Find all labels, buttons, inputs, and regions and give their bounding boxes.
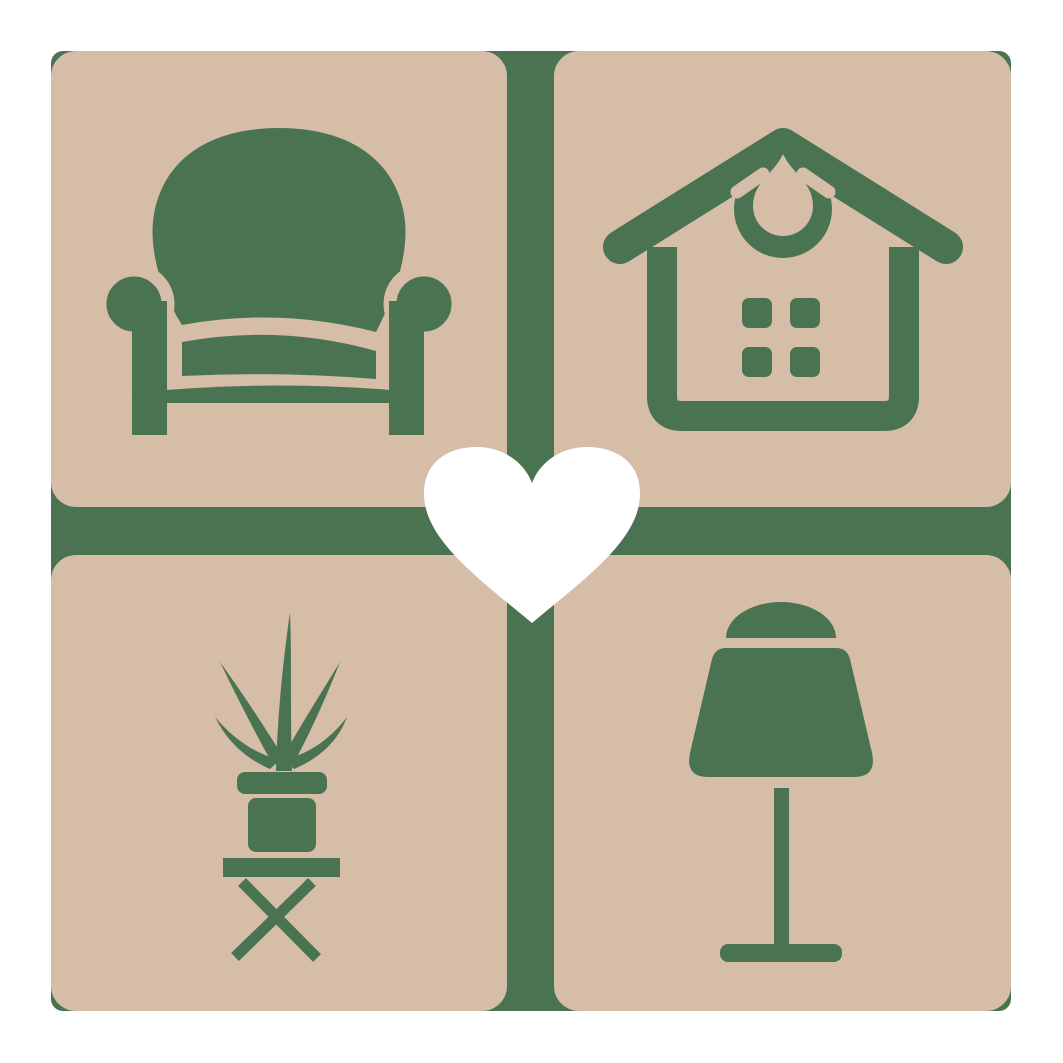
logo xyxy=(0,0,1063,1063)
tile-bottom-right xyxy=(554,555,1011,1011)
tile-top-right xyxy=(554,51,1011,507)
armchair-icon xyxy=(51,51,507,507)
tile-bottom-left xyxy=(51,555,507,1011)
house-icon xyxy=(554,51,1011,507)
table-lamp-icon xyxy=(554,555,1011,1011)
potted-plant-icon xyxy=(51,555,507,1011)
tile-top-left xyxy=(51,51,507,507)
